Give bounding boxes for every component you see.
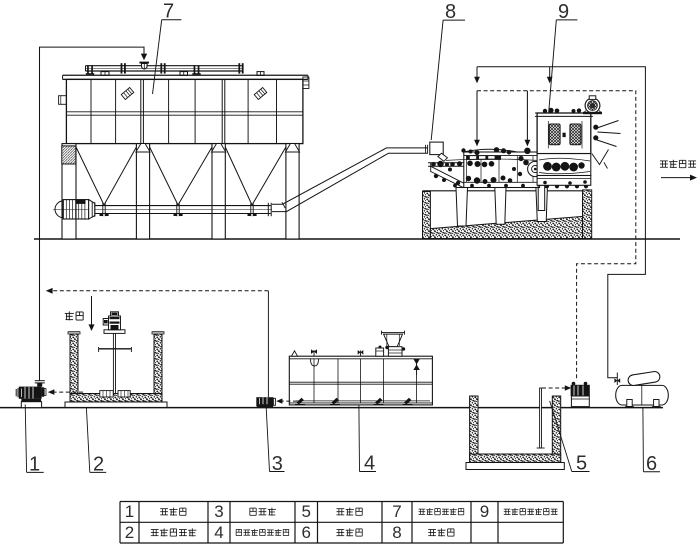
svg-text:4: 4 bbox=[214, 523, 223, 542]
svg-text:9: 9 bbox=[480, 502, 489, 521]
svg-text:5: 5 bbox=[302, 502, 311, 521]
svg-text:3: 3 bbox=[214, 502, 223, 521]
svg-text:1: 1 bbox=[125, 502, 134, 521]
svg-text:7: 7 bbox=[392, 502, 401, 521]
svg-text:2: 2 bbox=[125, 523, 134, 542]
svg-text:6: 6 bbox=[302, 523, 311, 542]
svg-text:8: 8 bbox=[392, 523, 401, 542]
